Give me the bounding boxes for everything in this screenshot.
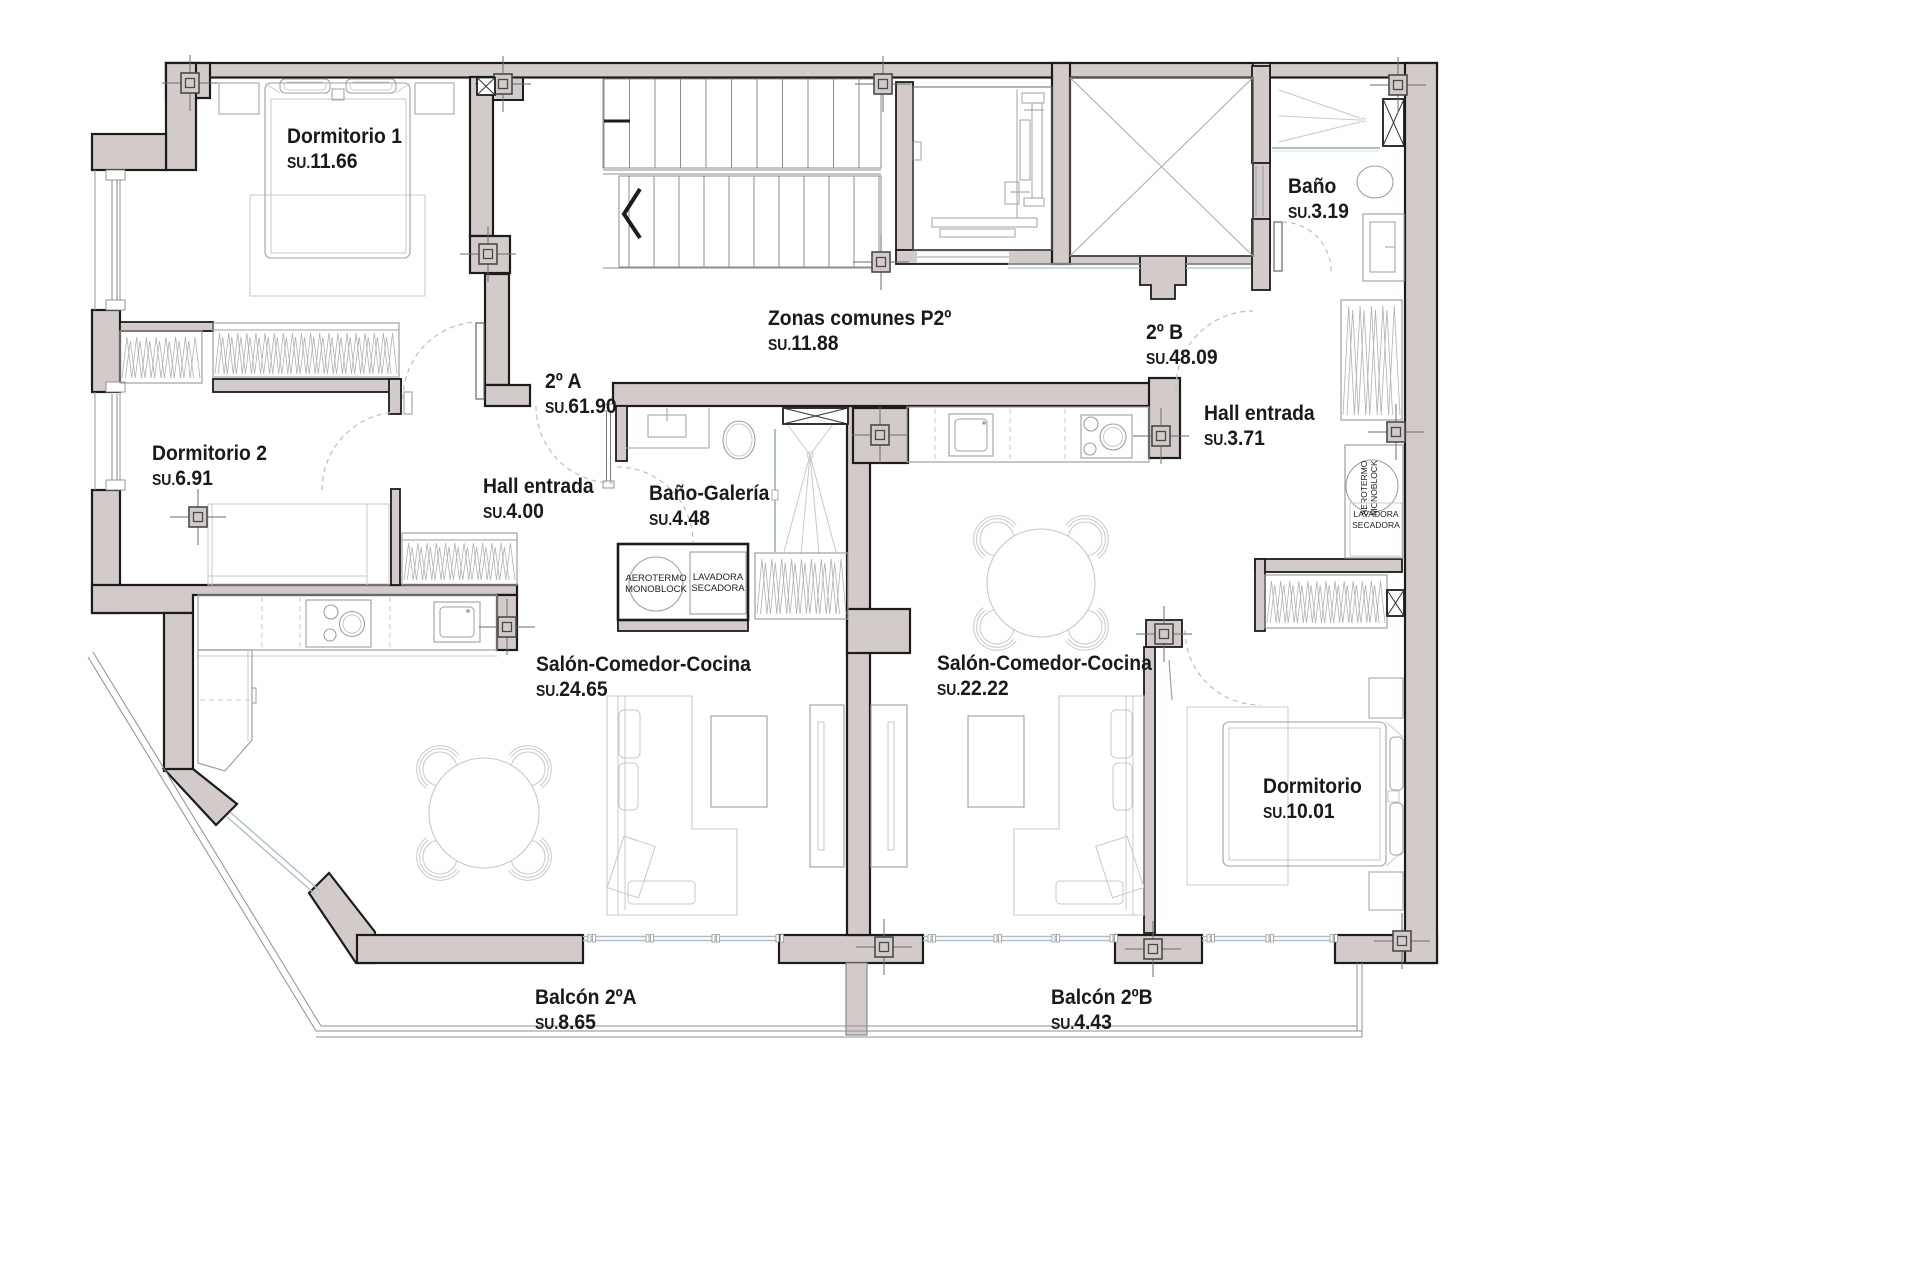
svg-text:Balcón 2ºB: Balcón 2ºB	[1051, 985, 1153, 1009]
svg-text:LAVADORA: LAVADORA	[1353, 509, 1398, 519]
svg-text:Baño: Baño	[1288, 174, 1336, 198]
svg-text:Dormitorio 1: Dormitorio 1	[287, 124, 402, 148]
svg-text:2º A: 2º A	[545, 369, 582, 393]
svg-text:LAVADORA: LAVADORA	[693, 572, 744, 583]
svg-text:SECADORA: SECADORA	[691, 583, 745, 594]
svg-text:Dormitorio: Dormitorio	[1263, 774, 1362, 798]
svg-text:MONOBLOCK: MONOBLOCK	[1369, 460, 1379, 516]
svg-text:Hall entrada: Hall entrada	[1204, 401, 1315, 425]
svg-text:Balcón 2ºA: Balcón 2ºA	[535, 985, 637, 1009]
svg-text:Dormitorio 2: Dormitorio 2	[152, 441, 267, 465]
svg-text:2º B: 2º B	[1146, 320, 1183, 344]
svg-text:Hall entrada: Hall entrada	[483, 474, 594, 498]
svg-text:Salón-Comedor-Cocina: Salón-Comedor-Cocina	[937, 651, 1152, 675]
svg-text:Baño-Galería: Baño-Galería	[649, 481, 770, 505]
svg-text:SECADORA: SECADORA	[1352, 520, 1400, 530]
svg-text:MONOBLOCK: MONOBLOCK	[625, 584, 687, 595]
svg-text:Salón-Comedor-Cocina: Salón-Comedor-Cocina	[536, 652, 751, 676]
svg-text:AEROTERMO: AEROTERMO	[625, 573, 686, 584]
svg-text:Zonas comunes P2º: Zonas comunes P2º	[768, 306, 952, 330]
svg-text:AEROTERMO: AEROTERMO	[1359, 460, 1369, 515]
